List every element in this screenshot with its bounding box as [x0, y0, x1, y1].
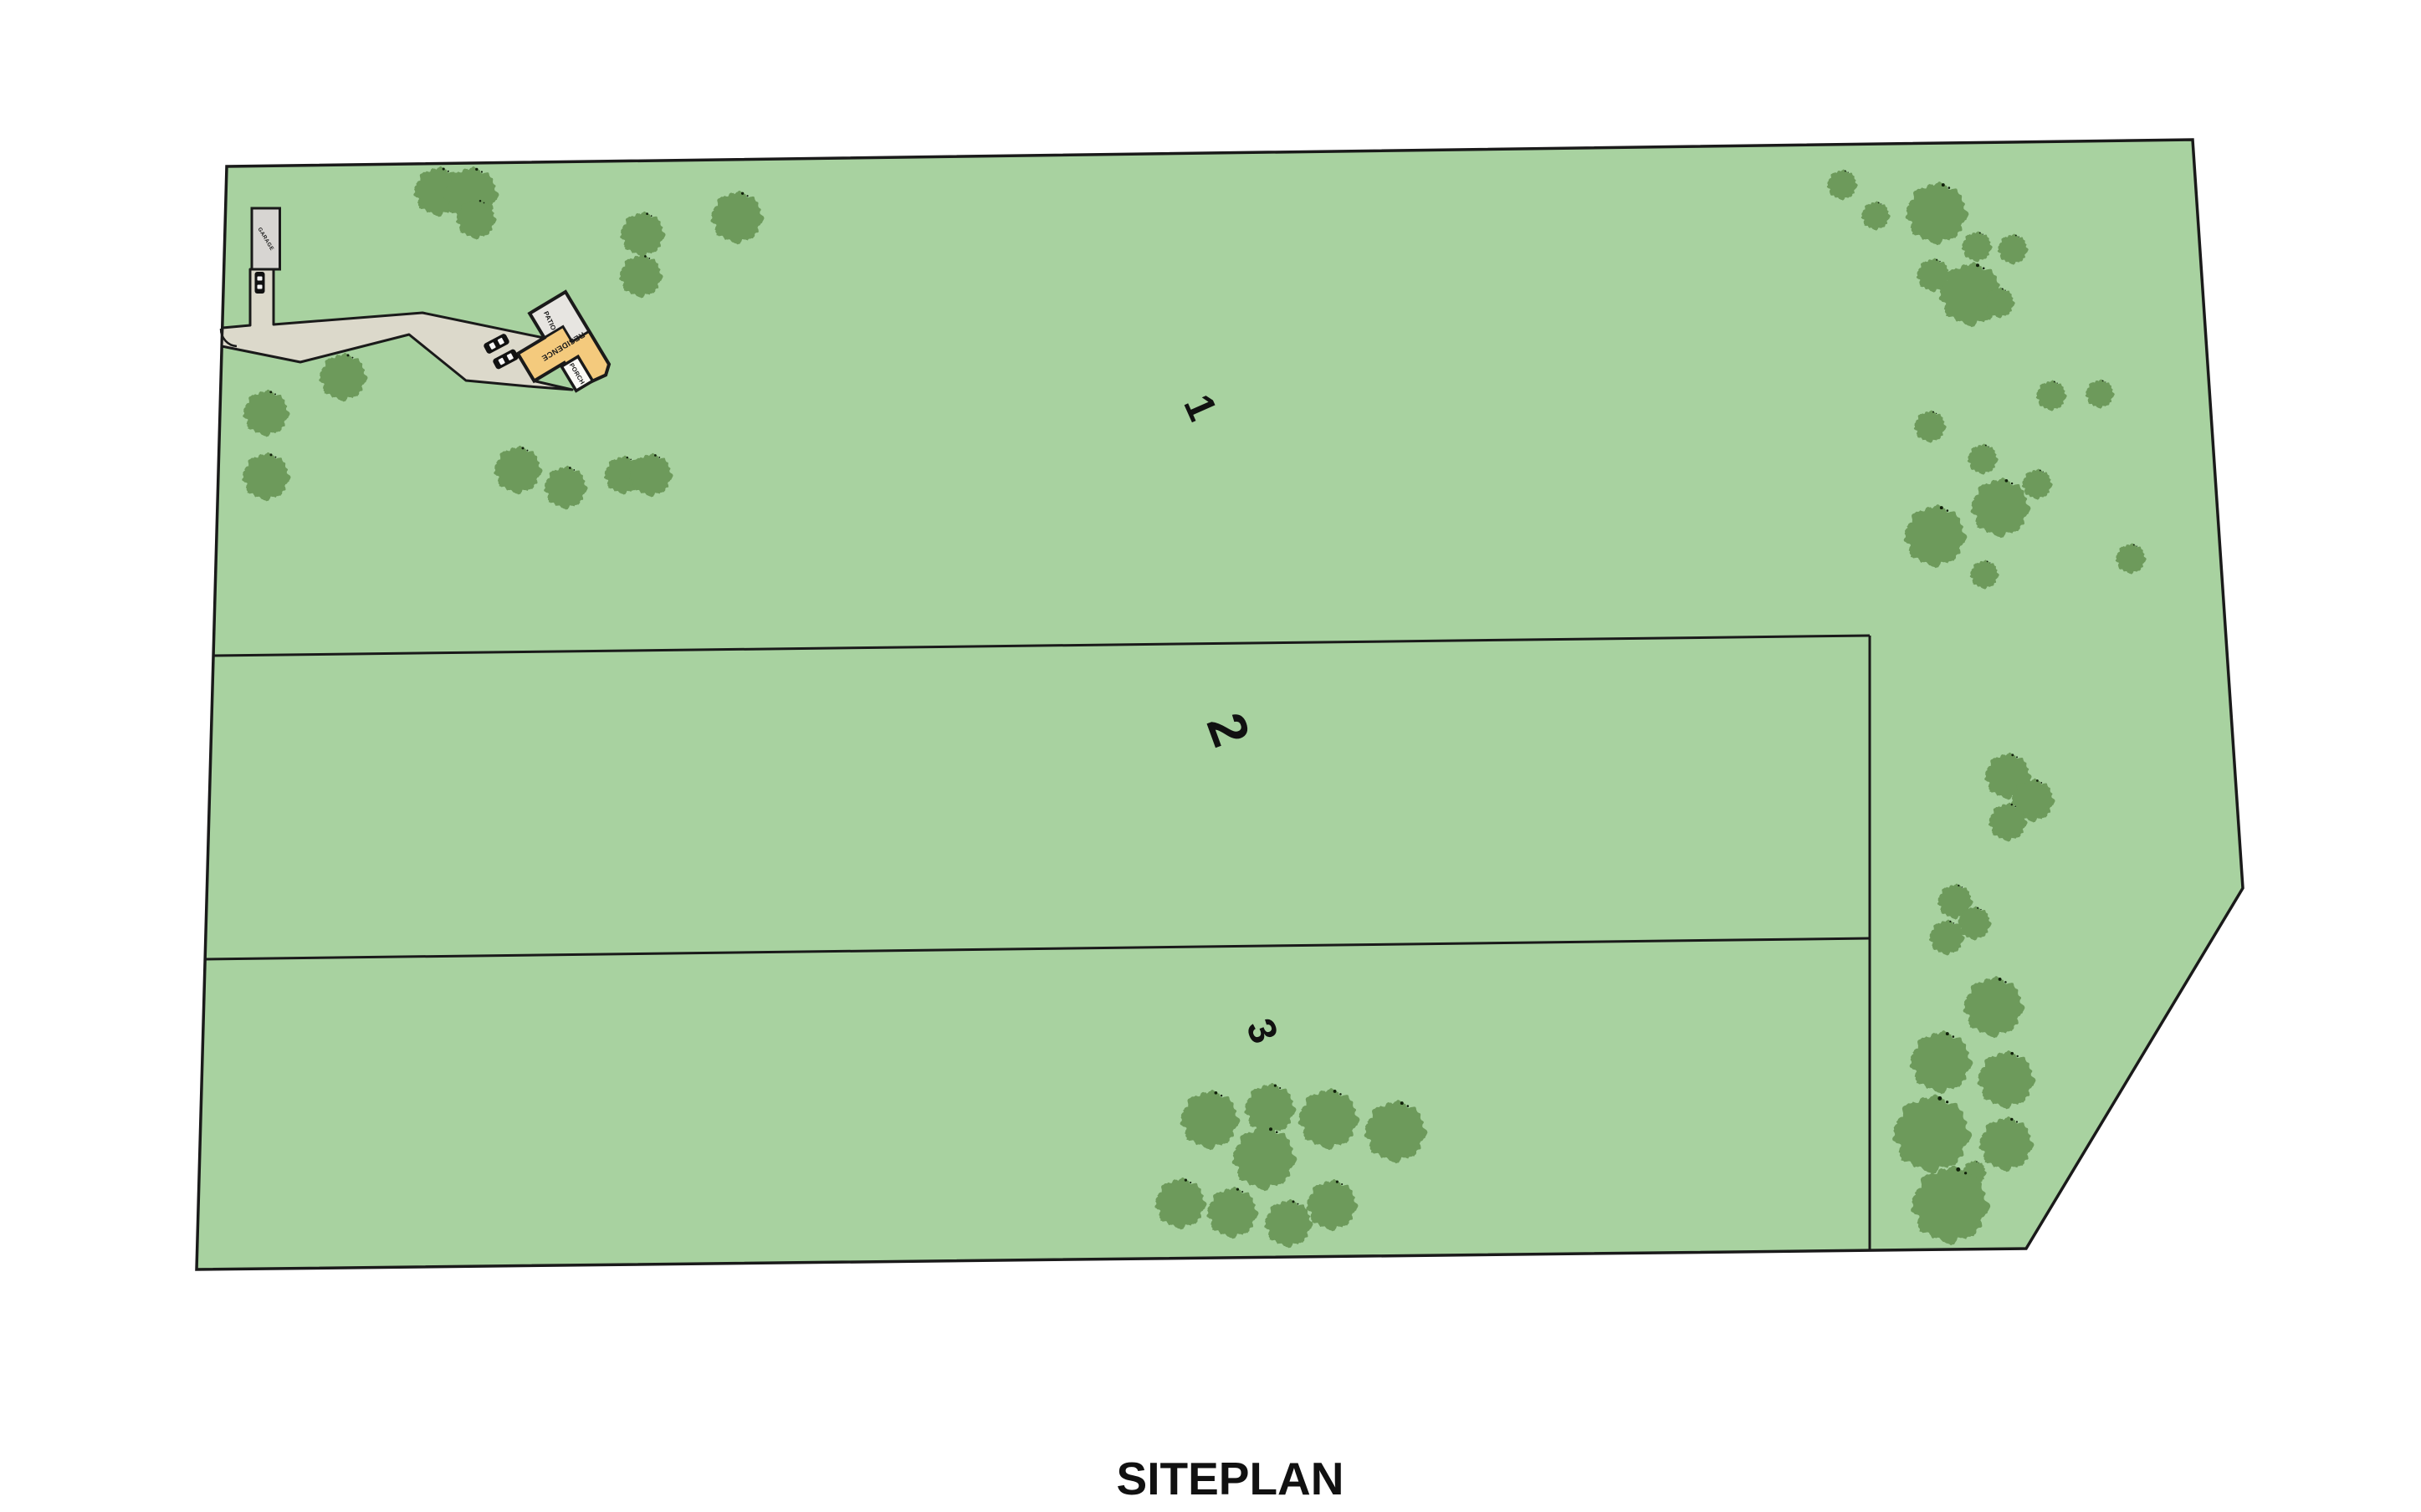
svg-text:SITEPLAN: SITEPLAN [1117, 1453, 1344, 1504]
